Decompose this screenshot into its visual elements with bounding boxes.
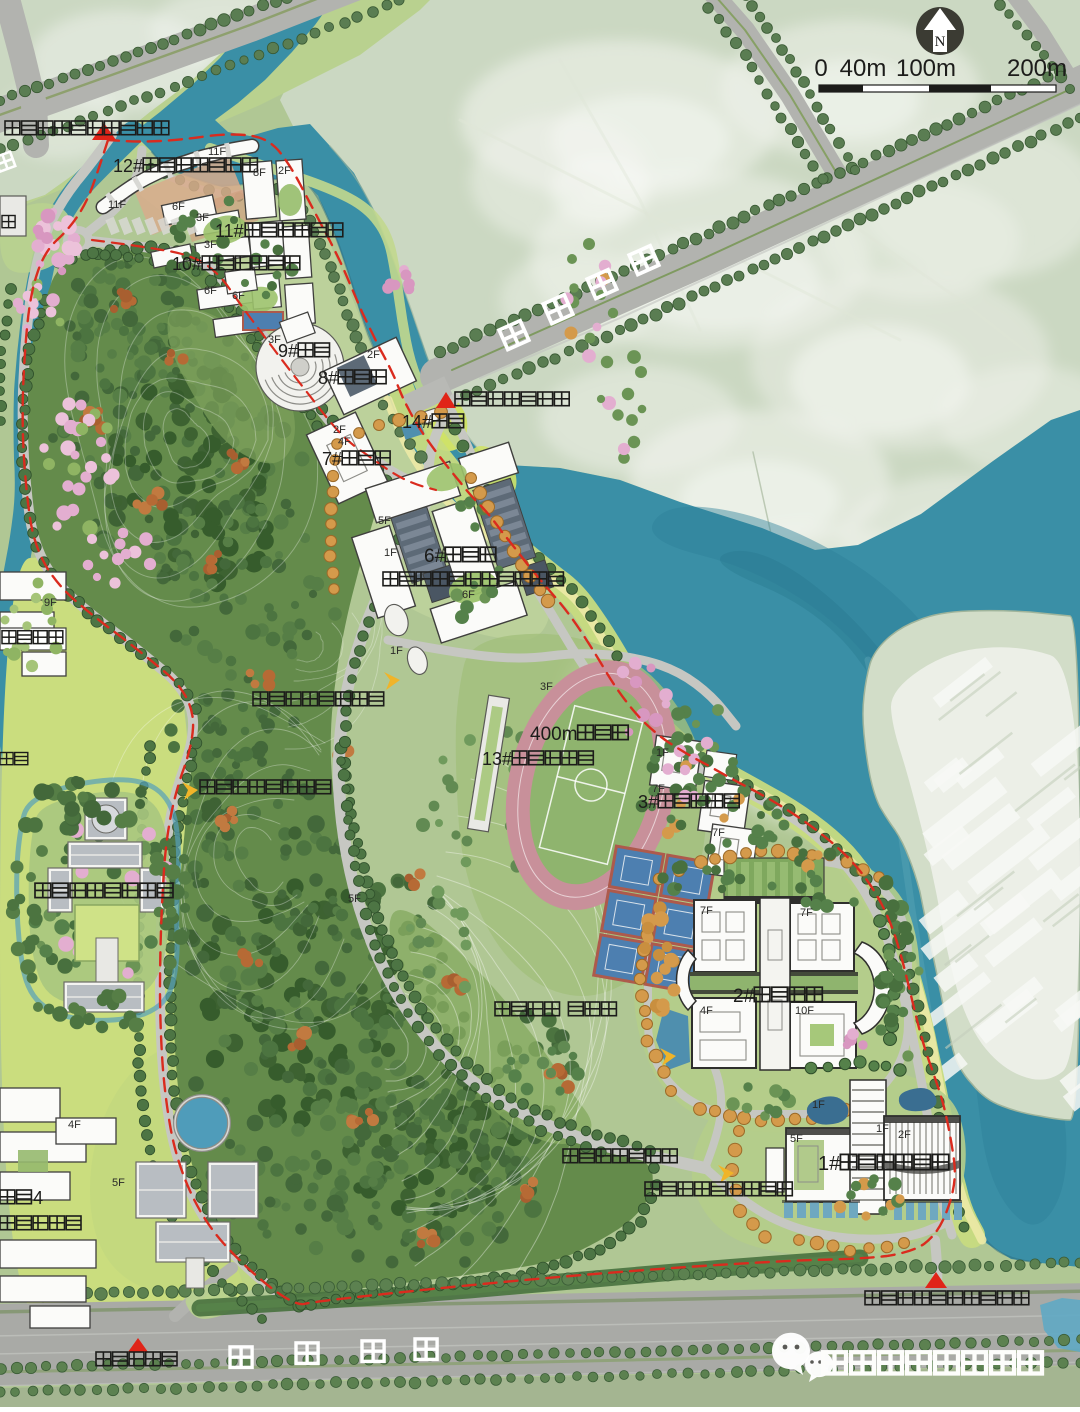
- svg-text:5F: 5F: [348, 893, 361, 905]
- svg-text:40m: 40m: [840, 55, 887, 82]
- svg-text:13#: 13#: [482, 749, 512, 769]
- svg-text:N: N: [935, 34, 946, 50]
- svg-text:6F: 6F: [462, 589, 475, 601]
- svg-text:6#: 6#: [424, 546, 446, 567]
- svg-text:5F: 5F: [378, 515, 391, 527]
- svg-text:1F: 1F: [812, 1099, 825, 1111]
- svg-text:7#: 7#: [322, 449, 342, 469]
- svg-text:2F: 2F: [898, 1129, 911, 1141]
- svg-text:7F: 7F: [652, 783, 665, 795]
- svg-text:5F: 5F: [112, 1177, 125, 1189]
- svg-text:0: 0: [814, 55, 827, 82]
- svg-text:8F: 8F: [253, 167, 266, 179]
- svg-text:6F: 6F: [172, 201, 185, 213]
- svg-text:14#: 14#: [402, 412, 432, 432]
- svg-text:9F: 9F: [44, 597, 57, 609]
- svg-text:3F: 3F: [204, 239, 217, 251]
- svg-text:200m: 200m: [1007, 55, 1067, 82]
- svg-text:10#: 10#: [172, 254, 202, 274]
- svg-text:7F: 7F: [800, 907, 813, 919]
- svg-text:1F: 1F: [876, 1123, 889, 1135]
- svg-text:9#: 9#: [278, 341, 298, 361]
- svg-text:2F: 2F: [367, 349, 380, 361]
- svg-text:3F: 3F: [196, 212, 209, 224]
- svg-text:5F: 5F: [790, 1133, 803, 1145]
- svg-text:11F: 11F: [208, 146, 226, 158]
- svg-text:4F: 4F: [338, 436, 351, 448]
- svg-text:10F: 10F: [795, 1005, 814, 1017]
- svg-text:2#: 2#: [733, 986, 755, 1007]
- svg-text:1F: 1F: [390, 645, 403, 657]
- svg-text:11#: 11#: [215, 221, 244, 241]
- svg-text:100m: 100m: [896, 55, 956, 82]
- svg-text:1F: 1F: [384, 547, 397, 559]
- svg-text:12#: 12#: [113, 156, 143, 176]
- svg-text:4F: 4F: [700, 1005, 713, 1017]
- svg-text:2F: 2F: [333, 424, 346, 436]
- svg-text:3F: 3F: [540, 681, 553, 693]
- svg-text:2F: 2F: [278, 165, 291, 177]
- svg-text:11F: 11F: [108, 199, 126, 211]
- svg-text:4: 4: [33, 1188, 43, 1208]
- svg-text:8#: 8#: [318, 368, 338, 388]
- svg-text:7F: 7F: [712, 827, 725, 839]
- svg-text:1#: 1#: [818, 1153, 841, 1175]
- svg-text:6F: 6F: [204, 285, 217, 297]
- svg-text:3F: 3F: [268, 334, 281, 346]
- svg-text:4F: 4F: [68, 1119, 81, 1131]
- svg-text:7F: 7F: [700, 905, 713, 917]
- svg-text:6F: 6F: [232, 290, 245, 302]
- svg-text:400m: 400m: [530, 724, 578, 745]
- svg-text:3#: 3#: [638, 792, 658, 812]
- svg-text:1F: 1F: [656, 747, 669, 759]
